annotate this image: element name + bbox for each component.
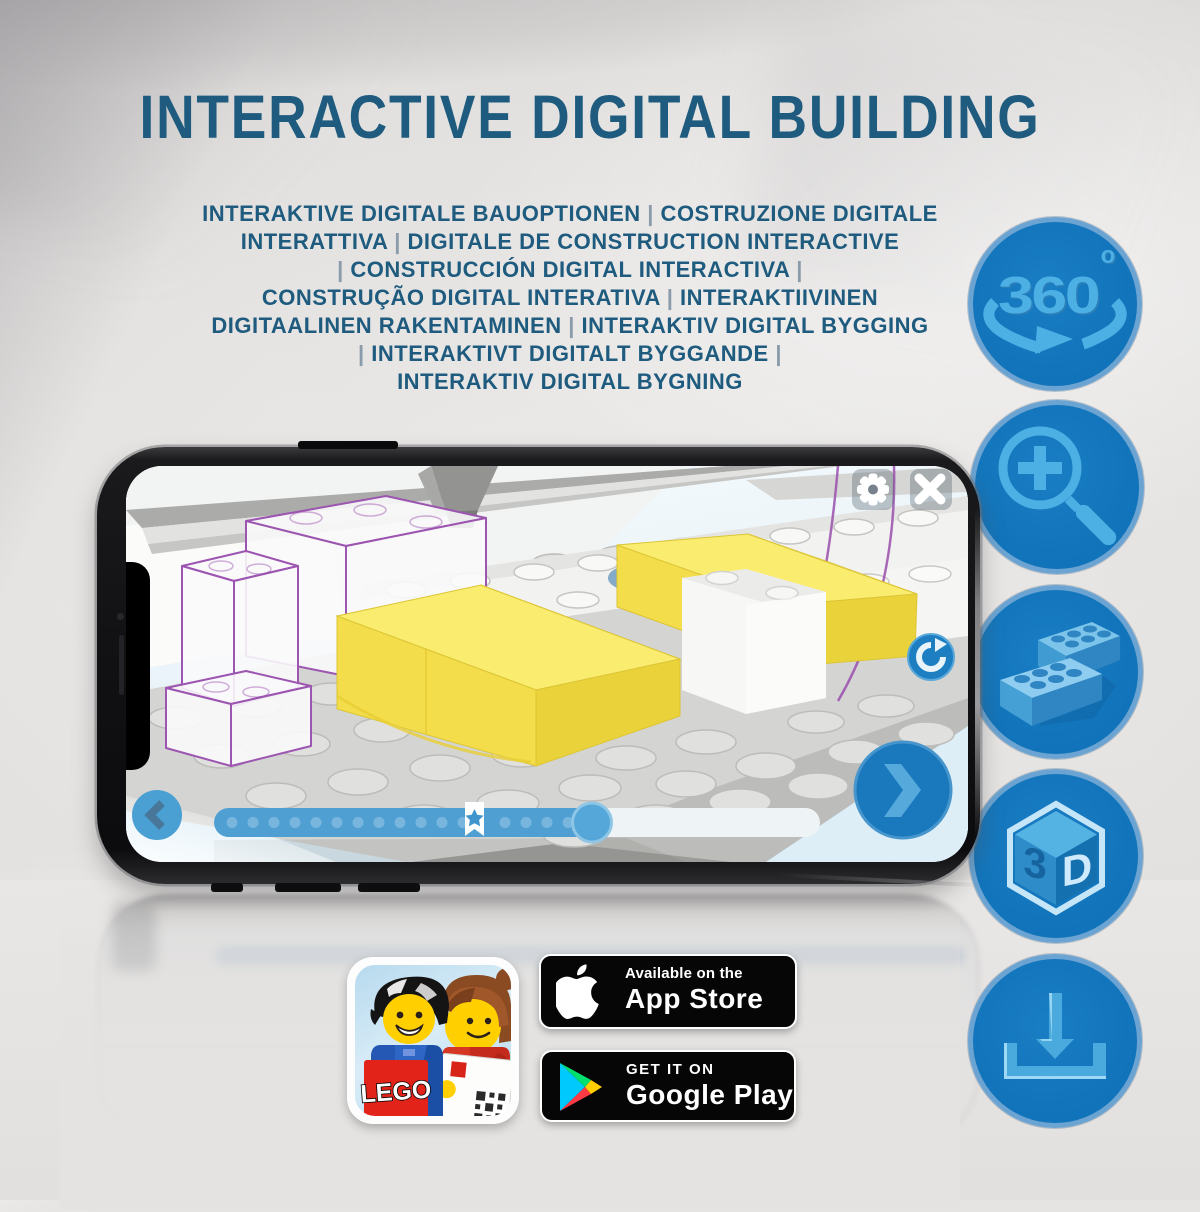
svg-text:o: o: [1101, 242, 1116, 269]
svg-text:3: 3: [1023, 837, 1046, 888]
svg-text:D: D: [1062, 843, 1092, 896]
svg-text:360: 360: [998, 267, 1099, 325]
svg-text:LEGO: LEGO: [360, 1076, 433, 1109]
